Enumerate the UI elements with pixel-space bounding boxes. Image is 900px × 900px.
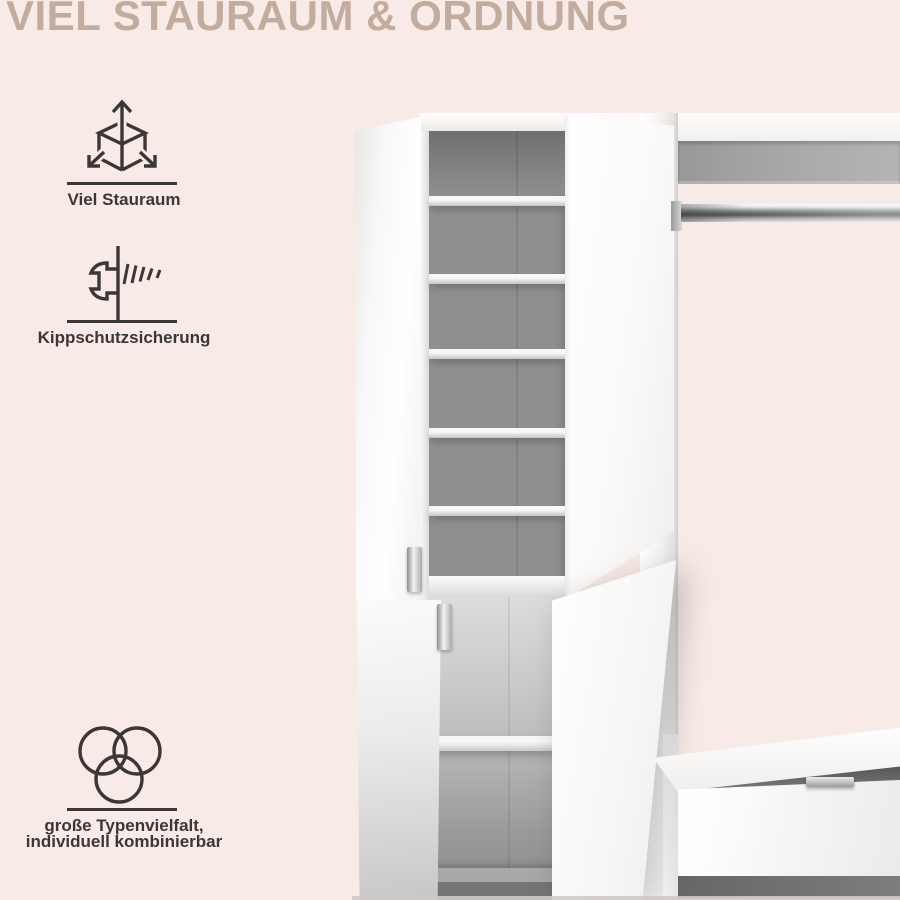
feature-divider bbox=[67, 320, 177, 323]
clothes-rail bbox=[681, 204, 900, 222]
cabinet-shelf bbox=[429, 506, 566, 516]
lower-left-door bbox=[357, 600, 441, 900]
cabinet-bottom-board bbox=[429, 576, 566, 600]
cabinet-top-shadow bbox=[429, 131, 566, 195]
cabinet-shelf bbox=[429, 428, 566, 438]
cabinet-shelf bbox=[429, 196, 566, 206]
wall-anchor-screw-icon bbox=[72, 244, 172, 322]
drawer-handle bbox=[806, 777, 854, 787]
cabinet-side-wall bbox=[420, 131, 429, 600]
cabinet-shelf bbox=[429, 274, 566, 284]
floor-line bbox=[352, 896, 900, 900]
feature-text: Viel Stauraum bbox=[2, 192, 246, 208]
cabinet-top-frame bbox=[420, 116, 566, 131]
wardrobe-top-underside bbox=[678, 141, 900, 184]
feature-text: Kippschutzsicherung bbox=[2, 330, 246, 346]
overlapping-circles-icon bbox=[78, 724, 166, 804]
cube-expand-icon bbox=[73, 95, 171, 173]
marketing-banner: VIEL STAURAUM & ORDNUNG Viel Stauraum Ki… bbox=[0, 0, 900, 900]
cabinet-floor bbox=[429, 868, 560, 882]
feature-text: individuell kombinierbar bbox=[2, 834, 246, 850]
upper-cabinet-interior bbox=[420, 116, 566, 600]
feature-divider bbox=[67, 182, 177, 185]
door-handle bbox=[437, 604, 452, 650]
door-handle bbox=[407, 547, 422, 592]
bench-drawer bbox=[678, 779, 900, 876]
cabinet-shelf bbox=[429, 349, 566, 359]
page-title: VIEL STAURAUM & ORDNUNG bbox=[6, 0, 900, 38]
lower-right-door bbox=[552, 558, 676, 900]
feature-label-anti-tip: Kippschutzsicherung bbox=[2, 330, 246, 346]
upper-left-door bbox=[355, 113, 421, 600]
feature-label-storage: Viel Stauraum bbox=[2, 192, 246, 208]
lower-right-door-panel bbox=[552, 558, 676, 900]
feature-divider bbox=[67, 808, 177, 811]
upper-right-door bbox=[565, 109, 674, 600]
cabinet-shelf bbox=[429, 736, 560, 751]
feature-label-variety: große Typenvielfalt, individuell kombini… bbox=[2, 818, 246, 850]
